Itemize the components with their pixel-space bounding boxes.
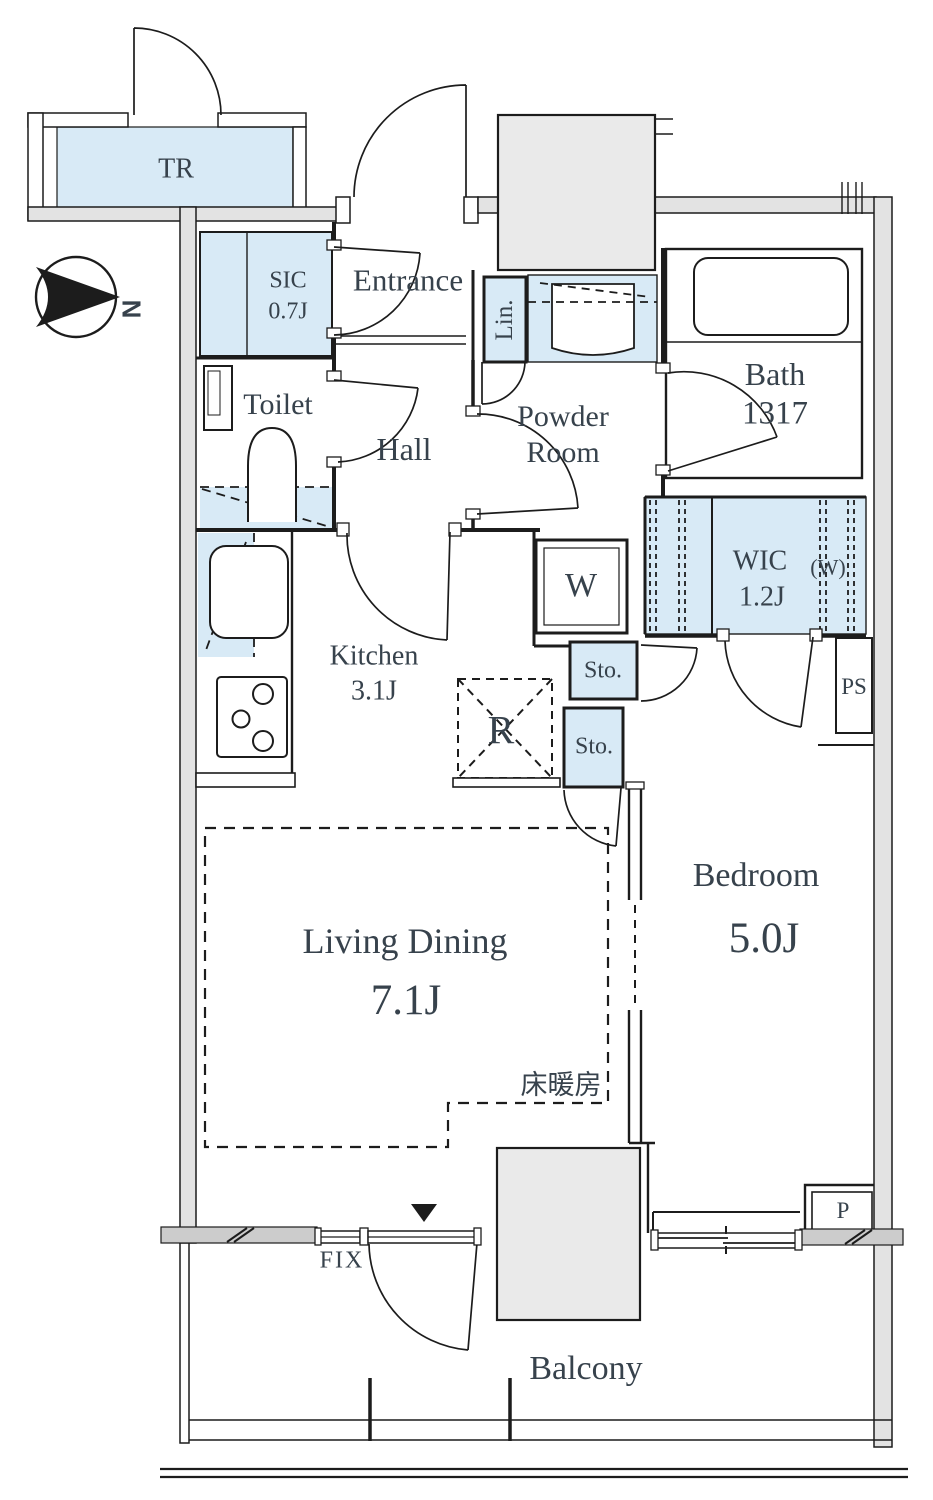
balcony-side-wall	[180, 1243, 189, 1443]
jamb	[626, 782, 644, 789]
pillar-block-bottom	[497, 1148, 640, 1320]
door-jamb	[336, 197, 350, 223]
window-cap	[651, 1230, 658, 1250]
floor-heating-label: 床暖房	[521, 1070, 602, 1100]
balcony-label: Balcony	[529, 1350, 642, 1388]
fridge-base	[453, 778, 560, 787]
bath-label: Bath	[745, 357, 805, 393]
window-cap	[795, 1230, 802, 1250]
bedroom-area: 5.0J	[729, 915, 799, 963]
sic-label: SIC	[269, 268, 306, 295]
floorplan-page: TR SIC 0.7J Entrance Toilet Hall Powder …	[0, 0, 933, 1500]
kitchen-sink	[210, 546, 288, 638]
balcony-railing	[160, 1378, 908, 1477]
window-mullion	[360, 1228, 368, 1245]
jamb	[717, 629, 729, 641]
jamb	[656, 363, 670, 373]
living-dining-label: Living Dining	[303, 921, 508, 961]
bedroom-door	[725, 637, 813, 727]
wic-note: (W)	[810, 556, 845, 581]
pillar-ticks	[655, 119, 673, 134]
bathtub	[694, 258, 848, 335]
wall	[874, 197, 892, 1447]
powder-room-label-top: Powder	[517, 400, 609, 434]
wall	[28, 113, 43, 220]
wall	[293, 127, 306, 209]
wall	[478, 197, 500, 213]
compass-n-label: N	[116, 300, 145, 319]
powder-room-label-bottom: Room	[526, 436, 599, 470]
bedroom-window	[653, 1233, 798, 1248]
window-cap	[315, 1228, 321, 1245]
bath-size: 1317	[742, 396, 808, 433]
colored-areas	[57, 127, 866, 787]
living-dining-area: 7.1J	[371, 977, 441, 1025]
balcony-outer-edge	[160, 1469, 908, 1477]
jamb	[656, 465, 670, 475]
compass	[36, 257, 120, 337]
kitchen-label: Kitchen	[330, 640, 419, 671]
jamb	[810, 629, 822, 641]
tr-door	[134, 28, 221, 115]
jamb	[327, 240, 341, 250]
kitchen-stove	[217, 677, 287, 757]
fix-label: FIX	[320, 1248, 365, 1275]
jamb	[327, 328, 341, 338]
kitchen-counter-base	[196, 773, 295, 787]
pillar-block-top	[498, 115, 655, 270]
entrance-door	[354, 85, 466, 197]
wic-area: 1.2J	[739, 581, 785, 612]
toilet-label: Toilet	[243, 388, 313, 422]
hatch-bar-right	[800, 1229, 903, 1245]
toilet-bowl	[248, 428, 296, 522]
hatch-bar-left	[161, 1227, 317, 1243]
wall	[655, 197, 876, 213]
sto-lower-door	[564, 788, 621, 846]
sto-upper-door	[641, 645, 697, 701]
wall	[218, 113, 306, 127]
sto-lower-label: Sto.	[575, 734, 613, 761]
door-jamb	[464, 197, 478, 223]
wall	[180, 207, 196, 1243]
kitchen-area: 3.1J	[351, 675, 397, 706]
hall-kitchen-door	[347, 532, 450, 640]
vanity-bowl	[552, 284, 634, 355]
linen-door	[482, 362, 525, 404]
sic-area: 0.7J	[268, 299, 307, 326]
hall-label: Hall	[376, 432, 431, 468]
bedroom-label: Bedroom	[693, 857, 820, 895]
p-label: P	[837, 1198, 850, 1224]
entrance-step	[334, 336, 466, 344]
balcony-door-swing	[369, 1243, 477, 1350]
railing-post	[370, 1378, 510, 1441]
fridge-label: R	[488, 709, 515, 754]
floorplan-drawing	[0, 0, 933, 1500]
sic-closet	[200, 232, 332, 356]
entry-direction-marker	[411, 1204, 437, 1222]
window-cap	[474, 1228, 481, 1245]
entrance-label: Entrance	[353, 264, 463, 299]
wic-label: WIC	[733, 545, 787, 576]
sto-upper-label: Sto.	[584, 658, 622, 685]
tr-label: TR	[158, 153, 194, 184]
linen-label: Lin.	[491, 300, 519, 341]
ps-label: PS	[841, 674, 867, 700]
washer-label: W	[565, 567, 597, 605]
jamb	[449, 523, 461, 536]
jamb	[327, 371, 341, 381]
